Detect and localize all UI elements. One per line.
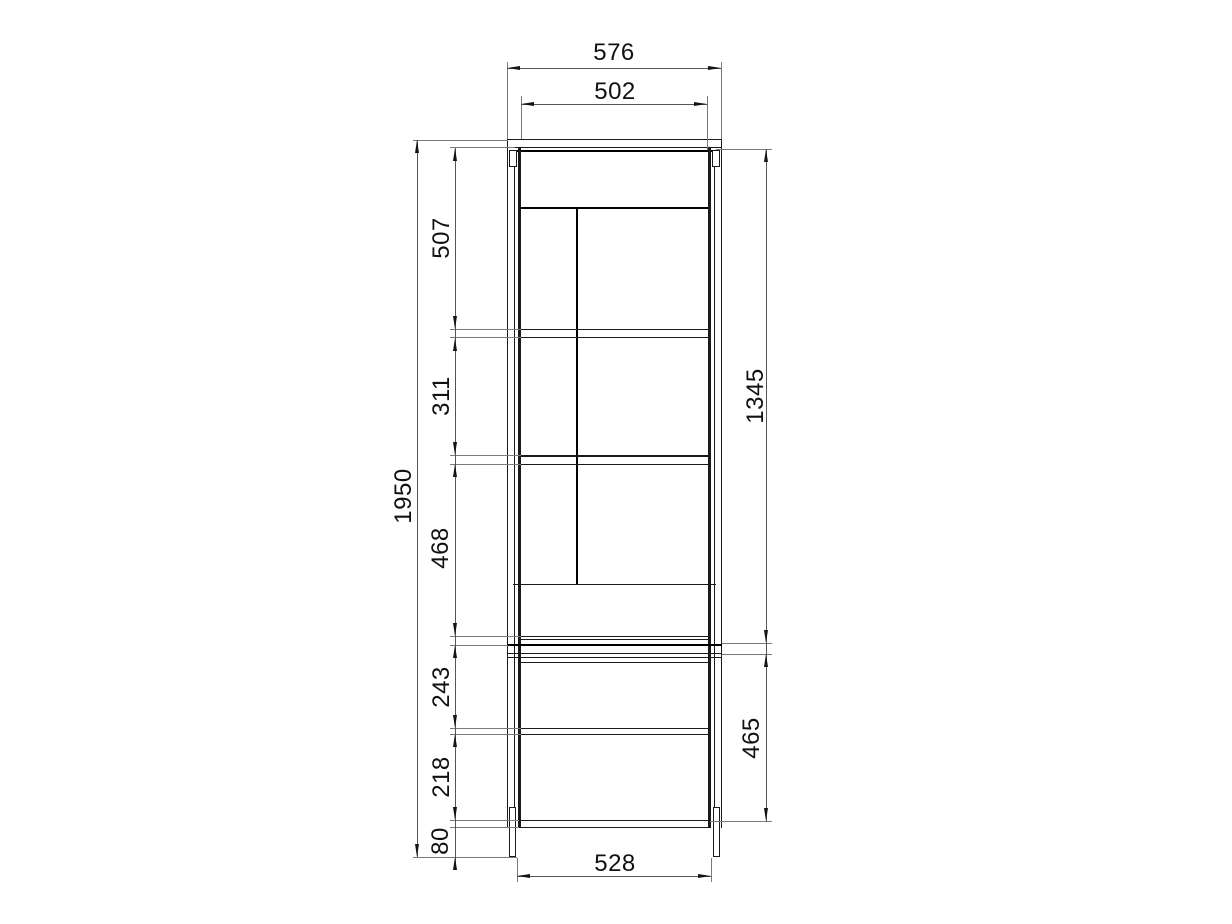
dim-label-upper-compartment-1: 507 <box>428 217 456 259</box>
bottom-board-top-line <box>518 820 710 821</box>
arrow-218-bottom-icon <box>453 807 457 820</box>
ext-218-bottom <box>450 820 519 821</box>
cabinet-technical-drawing: 576 502 1950 507 311 468 243 218 80 1345… <box>0 0 1232 924</box>
top-left-notch <box>509 150 517 167</box>
arrow-576-left-icon <box>507 66 520 70</box>
arrow-243-top-icon <box>453 645 457 658</box>
arrow-1345-top-icon <box>764 149 768 162</box>
shelf-1-bottom-line <box>521 337 709 338</box>
arrow-1950-bottom-icon <box>415 844 419 857</box>
left-panel-outer-line <box>507 148 508 828</box>
left-leg <box>509 807 516 857</box>
ext-465-bottom <box>710 821 772 822</box>
arrow-243-bottom-icon <box>453 715 457 728</box>
center-divider-line <box>576 208 578 585</box>
shelf-2-bottom-line <box>521 464 709 465</box>
ext-576-right <box>721 62 722 139</box>
arrow-311-top-icon <box>453 338 457 351</box>
floor-line <box>413 857 517 858</box>
top-board-underside-line <box>513 150 716 152</box>
ext-shelf1-top <box>450 329 521 330</box>
lower-top-line-2 <box>507 657 722 658</box>
left-panel-mid-line <box>514 167 515 807</box>
ext-80-top <box>450 827 519 828</box>
lower-top-line-1 <box>507 653 722 654</box>
top-right-notch <box>712 150 720 167</box>
arrow-80-bottom-icon <box>453 857 457 870</box>
ext-243-top <box>450 645 508 646</box>
dim-label-upper-compartment-3: 468 <box>427 527 455 569</box>
dim-label-upper-section-height: 1345 <box>742 368 770 423</box>
arrow-218-top-icon <box>453 734 457 747</box>
ext-468-bottom <box>450 636 521 637</box>
ext-shelf2-bottom <box>450 464 521 465</box>
right-panel-mid-line <box>714 167 715 807</box>
arrow-502-right-icon <box>694 102 707 106</box>
dim-label-plinth-height: 80 <box>427 827 455 855</box>
ext-218-top <box>450 734 521 735</box>
bottom-board-bottom-line <box>518 827 710 828</box>
ext-507-top <box>450 147 515 148</box>
lower-top-line-3 <box>521 662 709 663</box>
ext-528-left <box>517 858 518 882</box>
arrow-1345-bottom-icon <box>764 630 768 643</box>
top-rail-line <box>521 207 709 209</box>
dim-label-bottom-board-width: 528 <box>594 850 636 878</box>
arrow-311-bottom-icon <box>453 442 457 455</box>
arrow-465-top-icon <box>764 654 768 667</box>
arrow-528-right-icon <box>698 874 711 878</box>
ext-576-left <box>507 62 508 139</box>
drawer-divider-line-2 <box>521 734 709 735</box>
upper-bottom-shelf-line-1 <box>521 636 709 637</box>
ext-528-right <box>711 858 712 882</box>
arrow-507-top-icon <box>453 148 457 161</box>
dim-label-lower-section-height: 465 <box>738 717 766 759</box>
dim-label-top-outer-width: 576 <box>593 39 635 67</box>
arrow-507-bottom-icon <box>453 316 457 329</box>
dim-label-top-inner-width: 502 <box>594 78 636 106</box>
right-panel-outer-line <box>721 148 722 828</box>
ext-1345-bottom <box>722 643 772 644</box>
ext-1950-top <box>413 140 508 141</box>
arrow-528-left-icon <box>517 874 530 878</box>
drawer-divider-line-1 <box>521 728 709 729</box>
shelf-1-top-line <box>521 329 709 331</box>
dim-label-lower-compartment-2: 218 <box>428 756 456 798</box>
ext-243-bottom <box>450 728 521 729</box>
arrow-468-top-icon <box>453 464 457 477</box>
ext-shelf2-top <box>450 455 521 456</box>
shelf-2-top-line <box>521 455 709 457</box>
door-bottom-line <box>513 584 716 585</box>
section-divider-board <box>507 644 722 647</box>
arrow-1950-top-icon <box>415 140 419 153</box>
dim-label-overall-height: 1950 <box>390 468 418 523</box>
right-leg <box>713 807 720 857</box>
dim-label-lower-compartment-1: 243 <box>428 666 456 708</box>
arrow-468-bottom-icon <box>453 623 457 636</box>
dim-line-576 <box>507 68 721 69</box>
dim-label-upper-compartment-2: 311 <box>428 376 456 416</box>
left-panel-inner-line <box>518 148 521 828</box>
arrow-465-bottom-icon <box>764 808 768 821</box>
ext-shelf1-bottom <box>450 337 521 338</box>
upper-bottom-shelf-line-2 <box>521 639 709 640</box>
top-board <box>507 139 722 148</box>
arrow-502-left-icon <box>521 102 534 106</box>
right-panel-inner-line <box>708 148 711 828</box>
arrow-576-right-icon <box>708 66 721 70</box>
